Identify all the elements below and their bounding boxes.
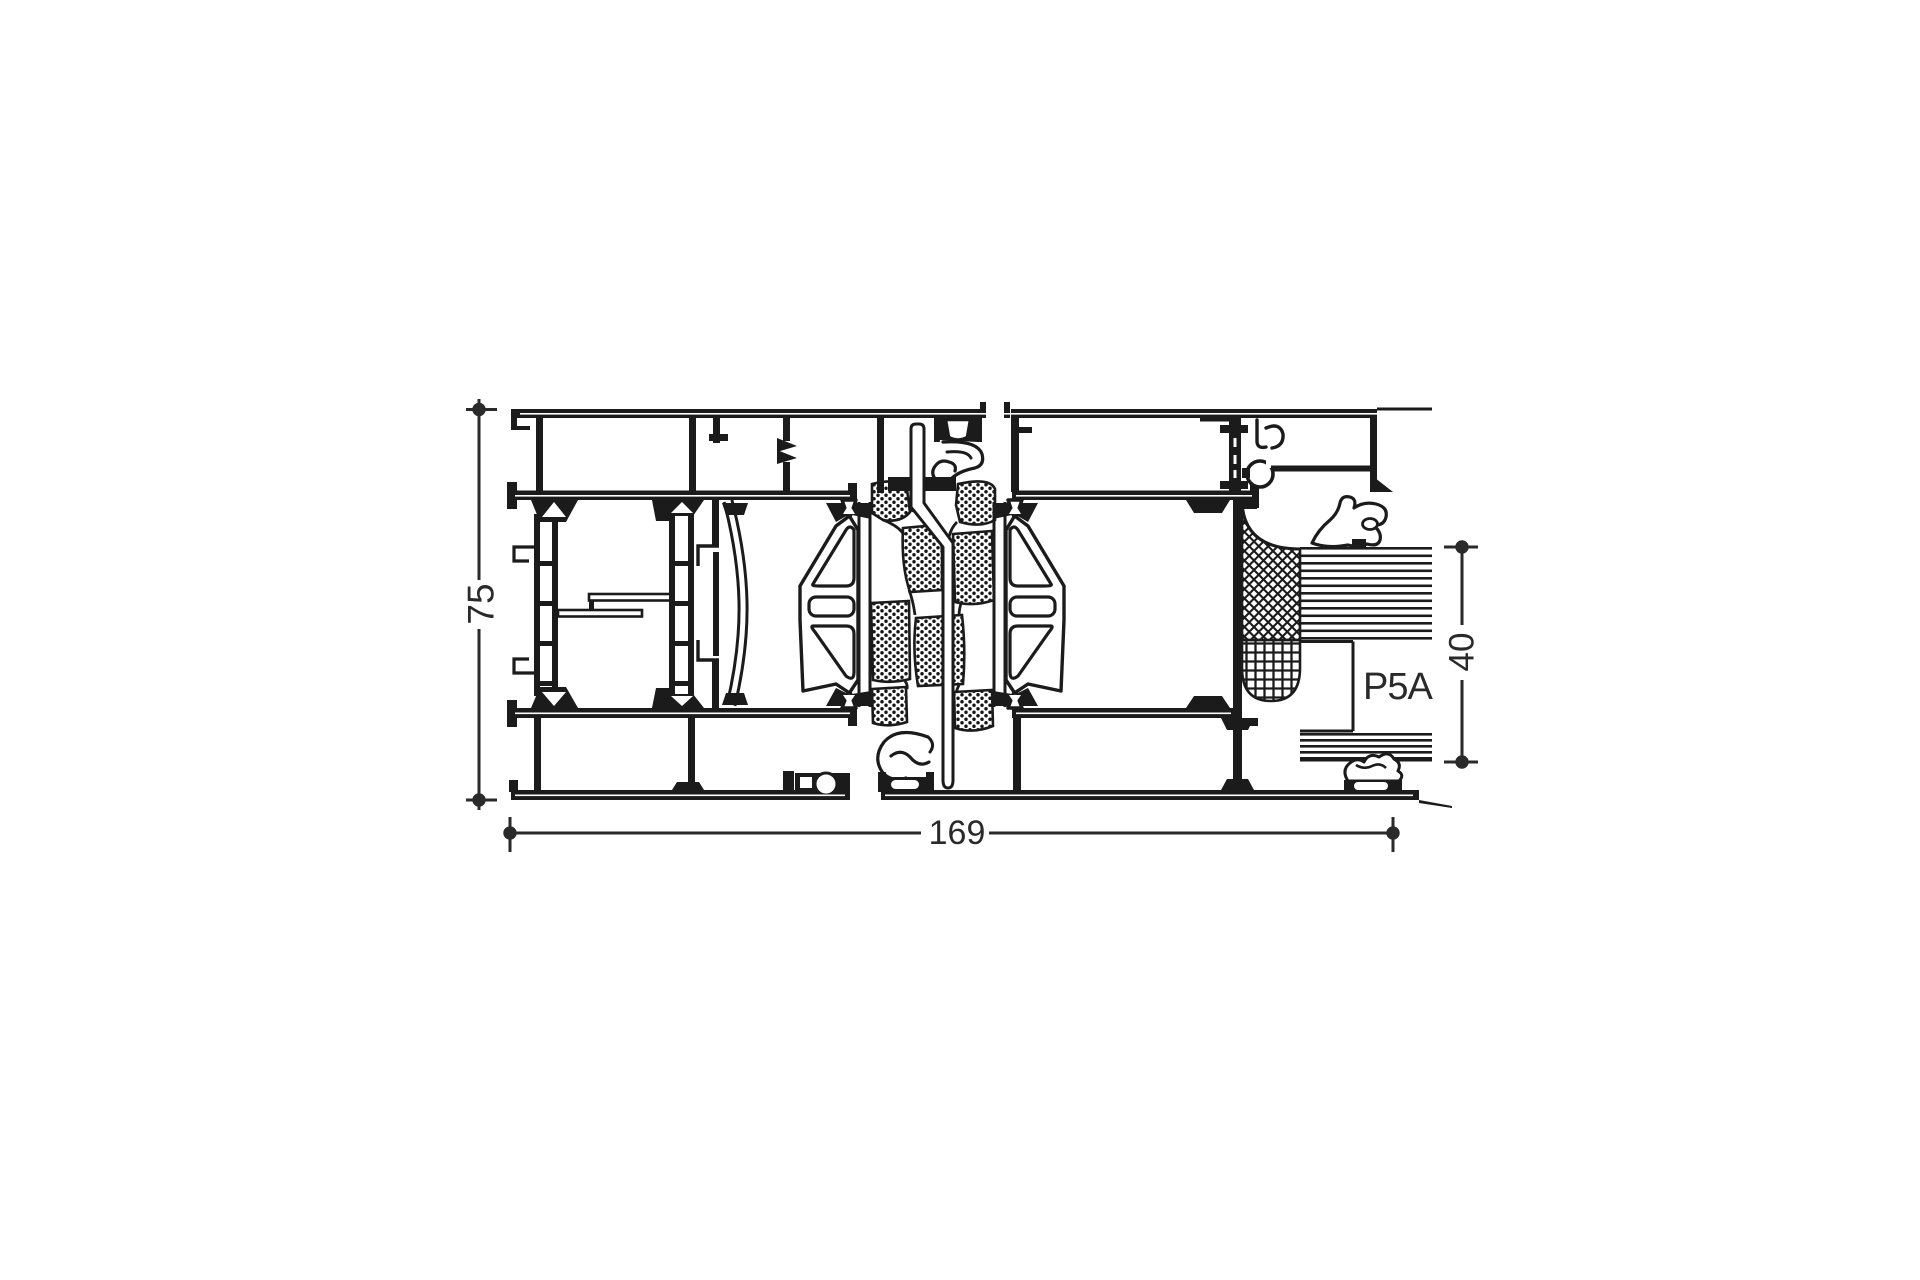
svg-text:75: 75 [461, 583, 502, 624]
svg-text:P5A: P5A [1363, 666, 1433, 708]
svg-text:169: 169 [929, 814, 986, 852]
svg-text:40: 40 [1443, 633, 1482, 672]
